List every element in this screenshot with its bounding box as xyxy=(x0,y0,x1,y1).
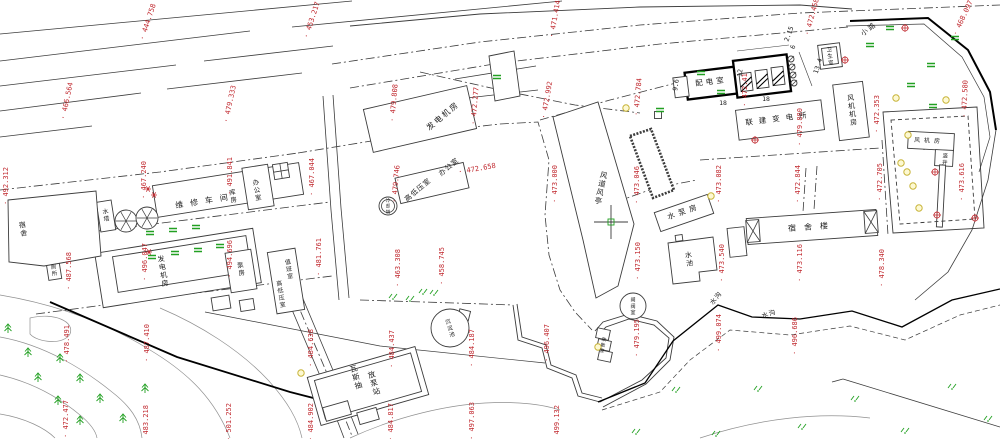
building-label: 闸阀室 xyxy=(630,297,635,316)
site-line xyxy=(517,304,602,398)
elevation-label: · 483.218 xyxy=(142,405,150,439)
railway-line xyxy=(292,1,562,27)
bush-icon xyxy=(927,64,935,67)
grass-icon xyxy=(672,387,680,392)
grass-icon xyxy=(754,386,762,391)
road-centerline xyxy=(298,122,592,330)
elevation-label: · 472.580 xyxy=(960,80,969,118)
elevation-label: · 479.333 xyxy=(222,85,238,124)
bush-icon xyxy=(169,229,177,232)
site-line xyxy=(350,5,852,26)
elevation-label: · 479.195 xyxy=(633,319,641,357)
elevation-label: · 497.063 xyxy=(468,402,476,439)
bush-icon xyxy=(886,27,894,30)
grass-icon xyxy=(948,384,956,389)
grass-icon xyxy=(430,290,438,295)
building xyxy=(727,227,747,258)
dimension-label: 6 xyxy=(789,44,798,50)
slope-line xyxy=(598,289,1000,402)
elevation-label: · 473.046 xyxy=(633,166,641,204)
contour-line xyxy=(0,375,97,438)
grass-icon xyxy=(851,396,859,401)
dimension-label: 2.15 xyxy=(783,25,796,43)
grass-icon xyxy=(406,296,414,301)
contour-line xyxy=(700,416,870,438)
building-label: 冷却塔 xyxy=(386,197,391,215)
grass-icon xyxy=(901,428,909,433)
road-centerline xyxy=(803,168,806,212)
elevation-label: · 473.540 xyxy=(718,244,726,282)
building-label: 小路 xyxy=(859,20,879,38)
elevation-label: · 487.568 xyxy=(65,252,73,290)
grass-icon xyxy=(632,429,640,434)
flow-arrow-icon xyxy=(832,379,843,382)
lamp-icon xyxy=(893,95,899,101)
railway-line xyxy=(0,31,250,61)
site-line xyxy=(513,305,600,402)
contour-line xyxy=(0,337,142,438)
elevation-label: · 472.844 xyxy=(794,165,802,203)
elevation-label: · 484.817 xyxy=(387,403,395,439)
elevation-label: · 484.187 xyxy=(468,329,476,367)
tree-icon xyxy=(120,414,127,423)
bush-icon xyxy=(656,109,664,112)
elevation-label: · 484.902 xyxy=(307,403,315,439)
building xyxy=(363,86,476,153)
elevation-label: · 463.308 xyxy=(394,249,402,287)
elevation-label: · 496.686 xyxy=(791,317,799,355)
elevation-label: · 473.082 xyxy=(715,165,723,203)
elevation-label: · 472.705 xyxy=(876,163,884,201)
dimension-label: 9.6 xyxy=(671,79,681,92)
survey-point-cross xyxy=(971,214,979,222)
elevation-label: · 478.491 xyxy=(63,325,71,363)
contour-line xyxy=(0,414,55,438)
dimension-label: 12 xyxy=(735,68,744,77)
elevation-label: · 467.240 xyxy=(140,161,148,199)
road-centerline xyxy=(814,166,817,210)
elevation-label: · 496.047 xyxy=(141,243,149,281)
dimension-label: 18 xyxy=(762,95,770,103)
elevation-label: · 473.616 xyxy=(958,163,966,201)
elevation-label: · 473.116 xyxy=(796,244,804,282)
building xyxy=(211,295,231,311)
elevation-label: · 472.353 xyxy=(873,95,881,133)
railway-line xyxy=(204,46,333,61)
bush-icon xyxy=(146,232,154,235)
tree-icon xyxy=(97,394,104,403)
railway-line xyxy=(0,65,176,86)
elevation-label: · 472.477 xyxy=(62,400,70,438)
elevation-label: · 484.437 xyxy=(388,330,396,368)
grass-icon xyxy=(798,424,806,429)
elevation-label: · 453.217 xyxy=(302,1,321,40)
elevation-label: · 471.414 xyxy=(548,0,562,38)
lamp-icon xyxy=(916,205,922,211)
tree-icon xyxy=(35,373,42,382)
elevation-label: · 458.745 xyxy=(438,247,446,285)
building xyxy=(655,112,662,119)
bush-icon xyxy=(907,84,915,87)
elevation-label: · 472.992 xyxy=(540,81,554,120)
bush-icon xyxy=(866,44,874,47)
elevation-label: · 473.150 xyxy=(634,242,642,280)
lamp-icon xyxy=(943,97,949,103)
building xyxy=(675,235,683,242)
site-line xyxy=(323,96,339,300)
elevation-label: · 466.564 xyxy=(59,82,75,121)
elevation-label: · 481.761 xyxy=(315,238,323,276)
building xyxy=(239,298,255,311)
elevation-label: · 444.758 xyxy=(138,3,157,42)
dimension-label: 18 xyxy=(719,99,727,107)
grass-icon xyxy=(419,289,427,294)
elevation-label: · 496.407 xyxy=(543,324,551,362)
bush-icon xyxy=(192,226,200,229)
slope-line xyxy=(850,18,996,130)
contour-line xyxy=(0,295,230,438)
building-label: 风机房 xyxy=(914,136,944,146)
site-line xyxy=(843,379,1000,427)
building-label: 水沟 xyxy=(707,289,723,306)
elevation-label: · 467.044 xyxy=(308,158,316,196)
elevation-label: · 499.132 xyxy=(553,405,561,439)
site-line xyxy=(737,45,789,51)
lamp-icon xyxy=(898,160,904,166)
elevation-label: · 492.312 xyxy=(2,167,10,205)
road-centerline xyxy=(360,300,513,305)
elevation-label: · 468.097 xyxy=(951,0,974,37)
lamp-icon xyxy=(910,183,916,189)
bush-icon xyxy=(929,105,937,108)
elevation-label: · 484.638 xyxy=(307,329,315,367)
lamp-icon xyxy=(708,193,714,199)
lamp-icon xyxy=(298,370,304,376)
grass-icon xyxy=(984,416,992,421)
survey-point-cross xyxy=(931,168,939,176)
elevation-label: · 478.340 xyxy=(878,249,886,287)
site-line xyxy=(799,52,812,86)
elevation-label: · 472.784 xyxy=(632,78,643,116)
lamp-icon xyxy=(904,169,910,175)
railway-line xyxy=(0,126,92,137)
survey-point-cross xyxy=(901,24,909,32)
grass-icon xyxy=(389,294,397,299)
elevation-label: · 494.696 xyxy=(226,240,234,278)
elevation-label: · 501.252 xyxy=(225,403,233,439)
elevation-label: · 487.410 xyxy=(143,324,151,362)
grass-icon xyxy=(712,431,720,436)
tree-icon xyxy=(142,384,149,393)
lamp-icon xyxy=(623,105,629,111)
site-line xyxy=(333,95,349,298)
elevation-label: · 499.074 xyxy=(715,314,723,352)
lamp-icon xyxy=(905,132,911,138)
elevation-label: · 473.000 xyxy=(551,165,559,203)
site-line xyxy=(205,312,545,363)
site-plan: · 444.758· 453.217· 466.564· 479.333· 47… xyxy=(0,0,1000,439)
tree-icon xyxy=(77,374,84,383)
railway-line xyxy=(0,1,352,34)
road-centerline xyxy=(700,148,880,160)
tree-icon xyxy=(5,324,12,333)
building xyxy=(267,248,304,314)
tree-icon xyxy=(25,348,32,357)
building-outline xyxy=(553,102,634,298)
site-plan-svg: · 444.758· 453.217· 466.564· 479.333· 47… xyxy=(0,0,1000,439)
elevation-label: · 472.277 xyxy=(469,87,480,125)
